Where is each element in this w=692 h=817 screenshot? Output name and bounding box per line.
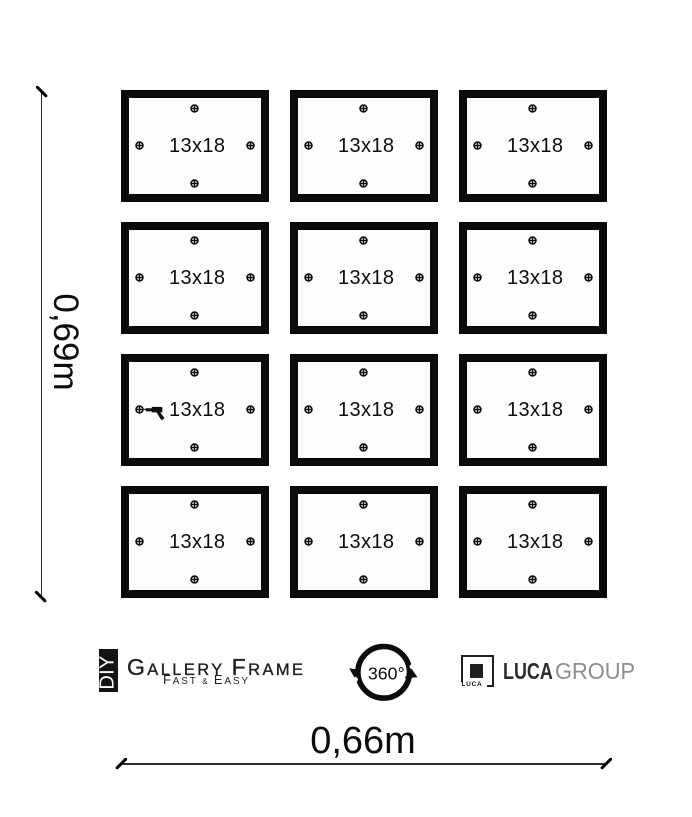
svg-text:360°: 360° bbox=[368, 664, 405, 684]
